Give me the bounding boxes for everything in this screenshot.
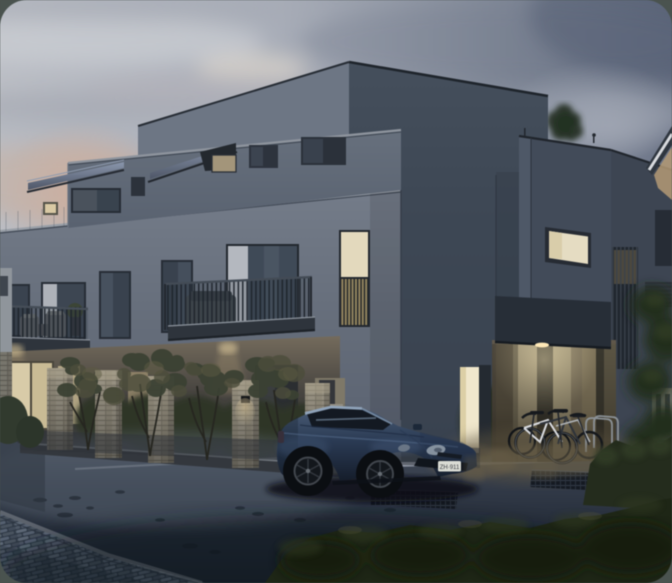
svg-text:ZH·911: ZH·911: [440, 465, 460, 471]
